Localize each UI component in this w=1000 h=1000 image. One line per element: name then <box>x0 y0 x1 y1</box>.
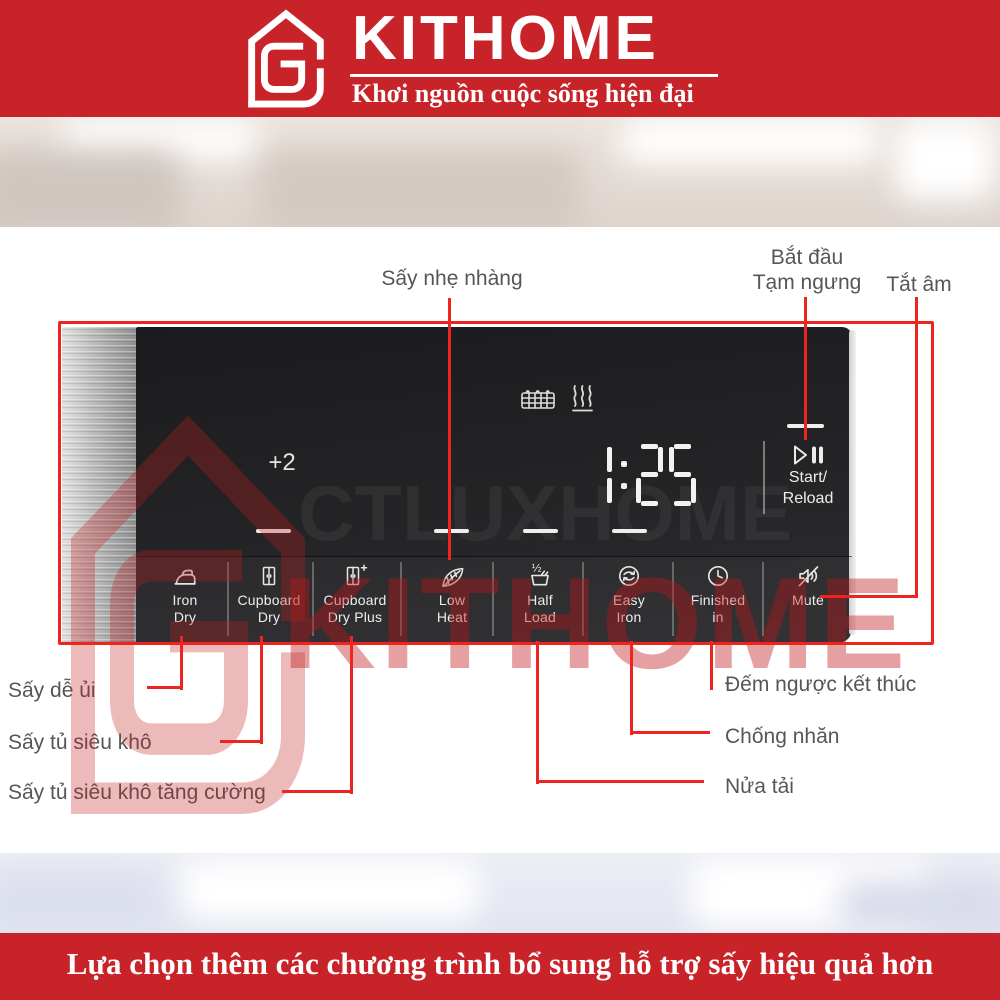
callout-half-load: Nửa tải <box>725 774 794 799</box>
callout-mute: Tắt âm <box>878 272 960 297</box>
house-logo-icon <box>236 7 336 109</box>
blur-blob <box>0 870 160 930</box>
callout-line-mute-h <box>820 595 918 598</box>
callout-line-cupboard-plus-h <box>282 790 353 793</box>
blur-blob <box>620 118 880 163</box>
blur-blob <box>180 860 480 920</box>
callout-easy-iron: Chống nhăn <box>725 724 839 749</box>
page: KITHOME Khơi nguồn cuộc sống hiện đại Sấ… <box>0 0 1000 1000</box>
blur-blob <box>840 880 1000 930</box>
callout-line-easy-iron-h <box>630 731 710 734</box>
callout-start-pause: Bắt đầu Tạm ngưng <box>728 245 886 295</box>
photo-strip-top <box>0 117 1000 227</box>
callout-line-gentle-dry <box>448 298 451 560</box>
panel-highlight-box <box>58 321 934 645</box>
callout-line-half-load-v <box>536 641 539 784</box>
callout-gentle-dry: Sấy nhẹ nhàng <box>374 266 530 291</box>
brand-divider <box>350 74 718 77</box>
callout-line-iron-h <box>147 686 183 689</box>
blur-blob <box>0 150 180 227</box>
callout-line-iron-v <box>180 636 183 690</box>
brand-header: KITHOME Khơi nguồn cuộc sống hiện đại <box>0 0 1000 117</box>
callout-line-cupboard-v <box>260 636 263 744</box>
brand-name: KITHOME <box>352 6 659 72</box>
callout-line-start <box>804 297 807 440</box>
callout-line-cupboard-h <box>220 740 263 743</box>
footer-text: Lựa chọn thêm các chương trình bổ sung h… <box>0 933 1000 982</box>
callout-line-mute-v <box>915 297 918 598</box>
blur-blob <box>260 150 580 227</box>
kithome-logo <box>236 7 336 109</box>
footer-banner: Lựa chọn thêm các chương trình bổ sung h… <box>0 933 1000 1000</box>
callout-line-half-load-h <box>536 780 704 783</box>
photo-strip-bottom <box>0 853 1000 933</box>
callout-line-cupboard-plus-v <box>350 636 353 794</box>
brand-tagline: Khơi nguồn cuộc sống hiện đại <box>352 79 694 109</box>
callout-line-finished-v <box>710 641 713 690</box>
callout-start-line1: Bắt đầu <box>728 245 886 270</box>
callout-line-easy-iron-v <box>630 641 633 735</box>
blur-blob <box>895 120 995 200</box>
callout-start-line2: Tạm ngưng <box>728 270 886 295</box>
